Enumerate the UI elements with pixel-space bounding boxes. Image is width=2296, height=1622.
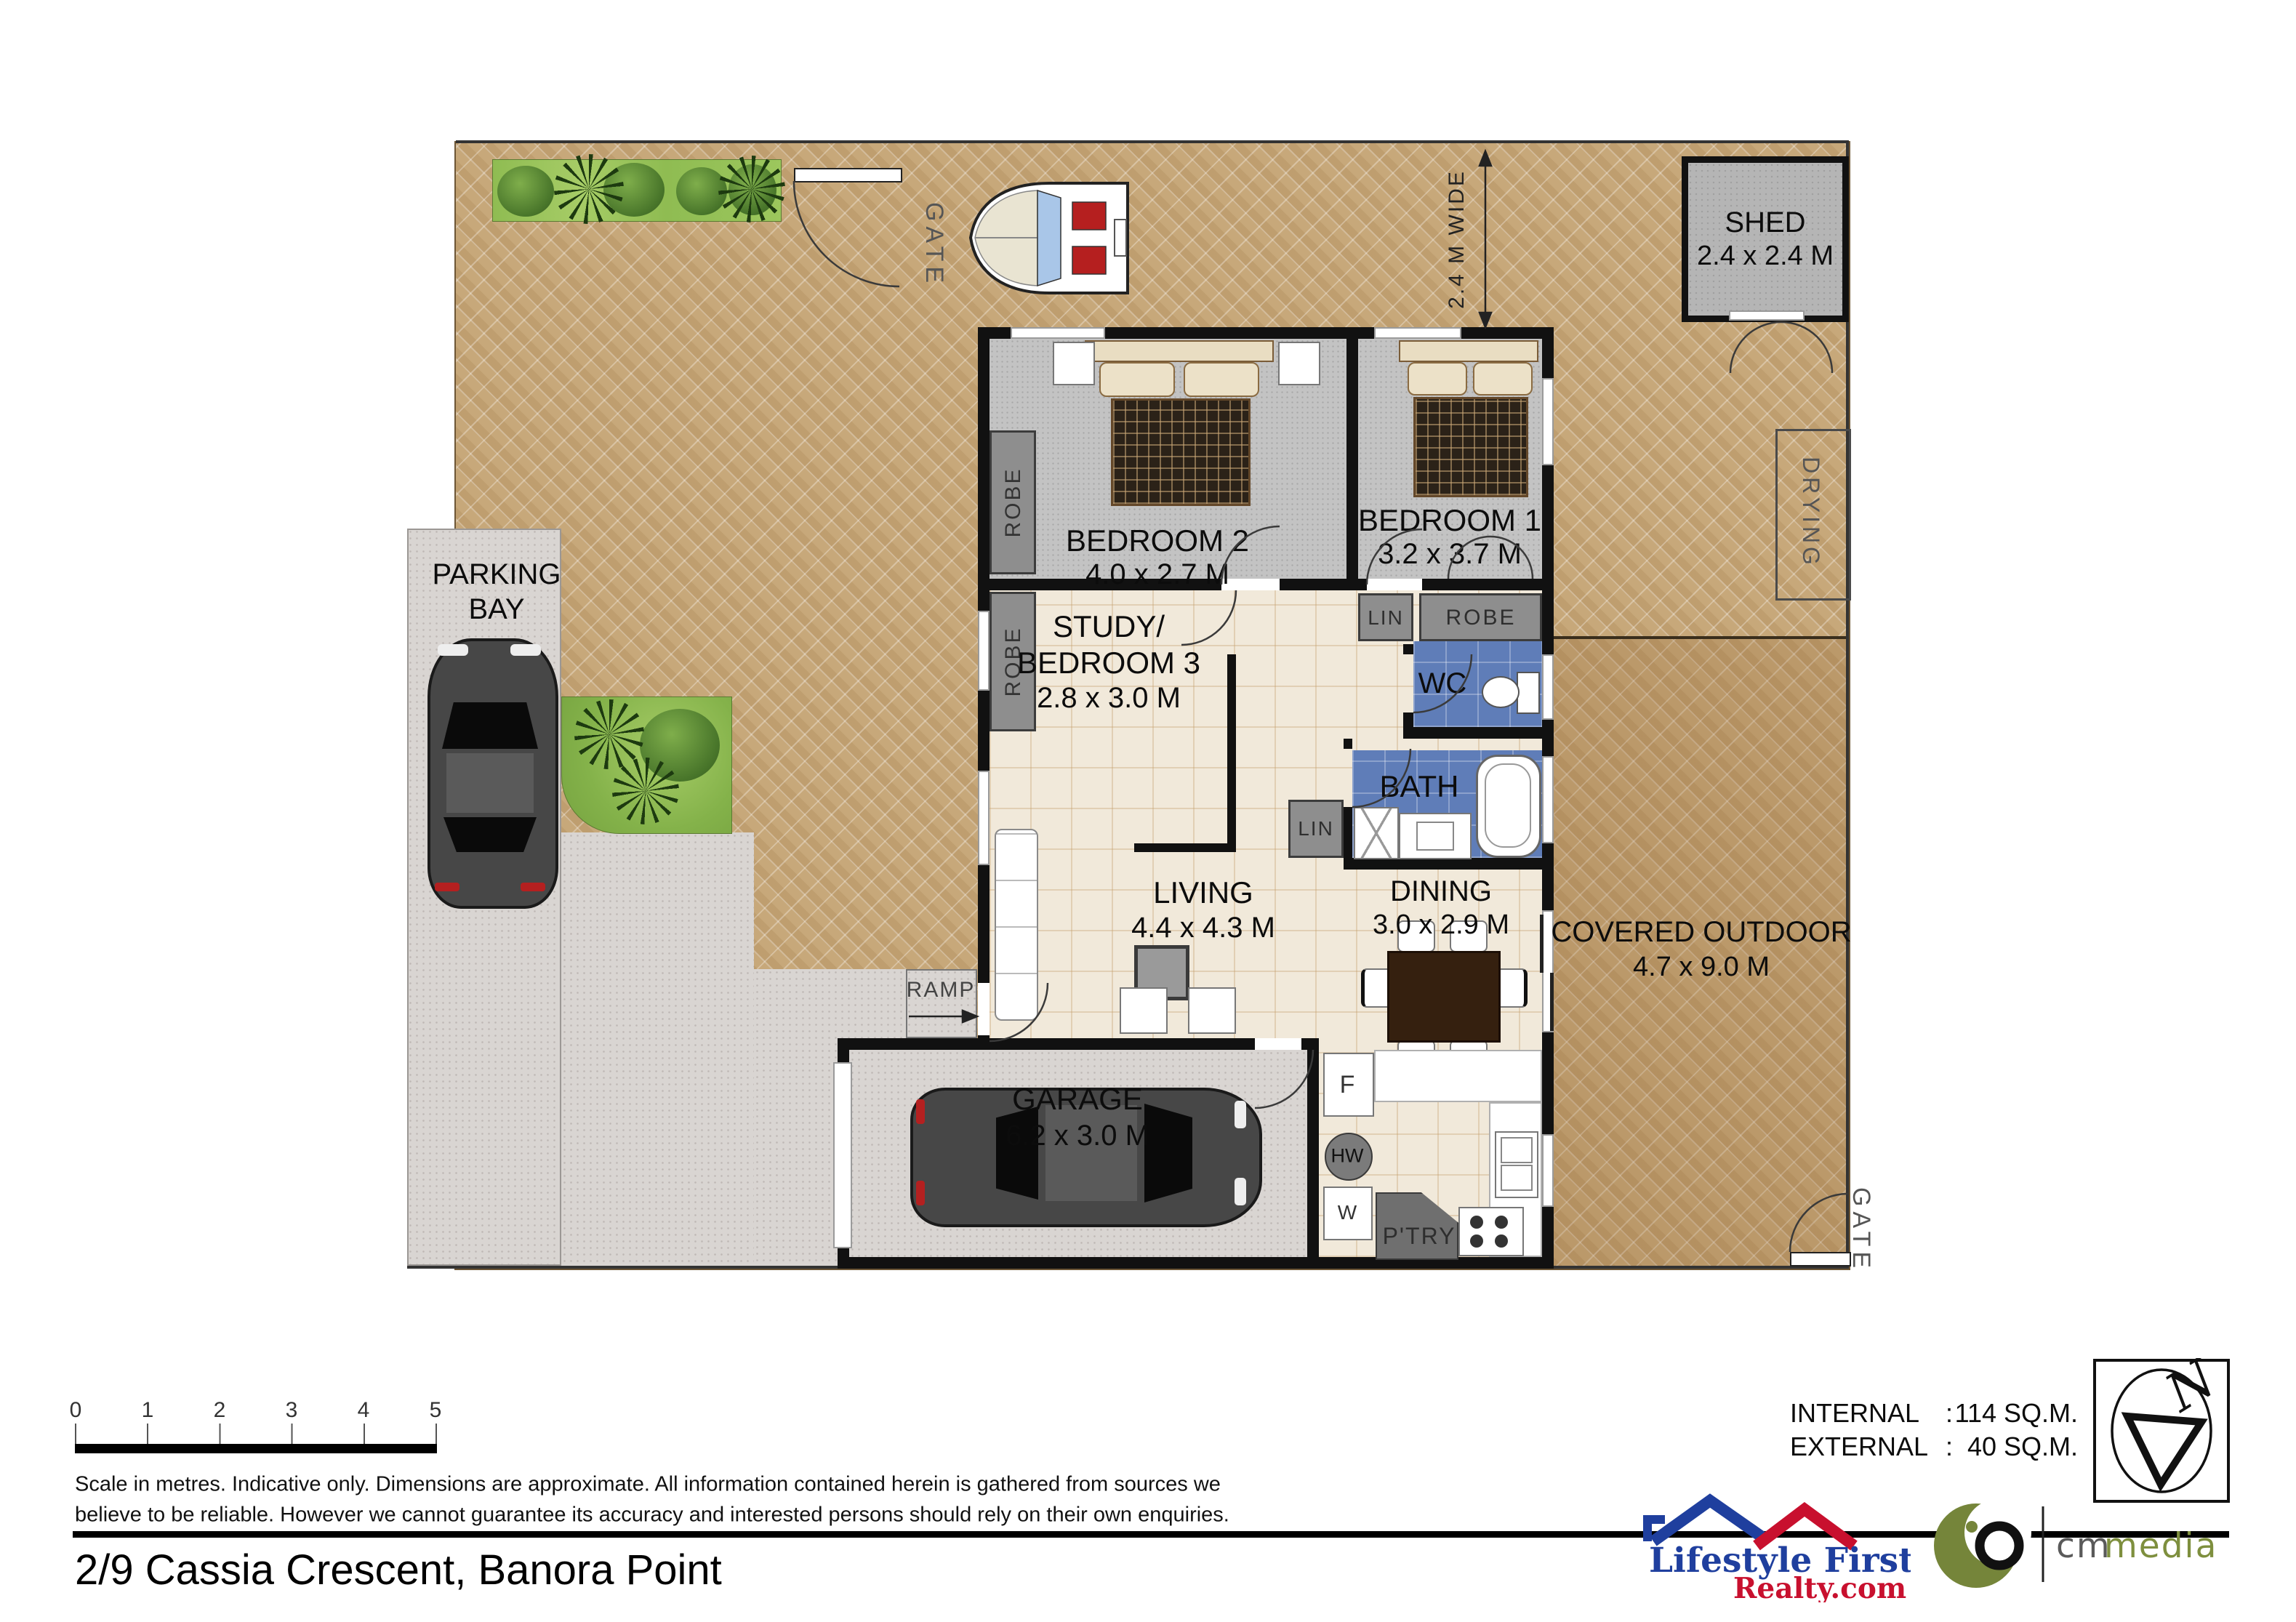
sink-bowl: [1501, 1137, 1533, 1163]
covered-outdoor-name: COVERED OUTDOOR: [1551, 918, 1851, 947]
garage-name: GARAGE: [1012, 1084, 1143, 1115]
window: [1542, 654, 1554, 720]
door-gap: [1367, 579, 1422, 590]
parking-bay-name-2: BAY: [468, 595, 524, 624]
gate-top-leaf: [794, 168, 902, 182]
external-value: 40 SQ.M.: [1967, 1434, 2078, 1460]
gate-top-label: GATE: [922, 202, 947, 288]
wall: [1134, 843, 1236, 852]
bedroom1-name: BEDROOM 1: [1358, 505, 1541, 536]
covered-outdoor-roofline: [1554, 636, 1849, 639]
bedside-table: [1053, 342, 1095, 385]
stove-burner: [1495, 1216, 1508, 1229]
lin-label: LIN: [1298, 819, 1334, 839]
window: [1011, 327, 1105, 339]
bed-pillow: [1408, 362, 1467, 396]
sofa: [995, 829, 1038, 1021]
palm-tree-icon: [554, 154, 624, 224]
parking-bay-name-1: PARKING: [432, 560, 561, 589]
fridge-label: F: [1340, 1072, 1355, 1097]
bed-mattress: [1413, 397, 1528, 497]
driveway-slab: [561, 832, 754, 1266]
window: [1542, 756, 1554, 843]
scale-note-1: Scale in metres. Indicative only. Dimens…: [75, 1474, 1221, 1495]
wall: [1346, 339, 1358, 579]
wc-name: WC: [1418, 669, 1467, 698]
external-colon: :: [1946, 1434, 1953, 1460]
scale-bar-ticks: [75, 1424, 437, 1444]
window: [1542, 1134, 1554, 1207]
realty-domain-text: Realty.com: [1733, 1572, 1906, 1602]
floor-plan-page: RAMP SHED 2.4 x 2.4 M DRYING GATE GATE 2…: [0, 0, 2296, 1622]
parked-car: [428, 638, 553, 903]
lin-label: LIN: [1368, 608, 1404, 628]
living-dims: 4.4 x 4.3 M: [1131, 913, 1275, 942]
door-gap: [978, 983, 990, 1035]
door-gap: [1255, 1038, 1301, 1050]
stove-burner: [1470, 1216, 1483, 1229]
external-label: EXTERNAL: [1790, 1434, 1928, 1460]
window: [1542, 378, 1554, 465]
shed-dims: 2.4 x 2.4 M: [1697, 242, 1834, 270]
toilet-bowl: [1482, 676, 1520, 708]
scale-bar: [75, 1444, 437, 1453]
dining-dims: 3.0 x 2.9 M: [1373, 911, 1509, 939]
sliding-door-panel: [1540, 915, 1544, 973]
stove-burner: [1470, 1234, 1483, 1248]
bed-mattress: [1111, 398, 1251, 506]
dining-name: DINING: [1390, 877, 1492, 906]
covered-outdoor-dims: 4.7 x 9.0 M: [1633, 953, 1770, 981]
shed-name: SHED: [1725, 208, 1805, 237]
window: [978, 611, 990, 691]
bed-pillow: [1473, 362, 1533, 396]
bath-name: BATH: [1380, 771, 1459, 802]
wall: [1344, 858, 1542, 870]
study-dims: 2.8 x 3.0 M: [1037, 683, 1181, 712]
internal-value: 114 SQ.M.: [1955, 1400, 2078, 1426]
dining-table: [1387, 951, 1501, 1043]
sink-bowl: [1501, 1165, 1533, 1191]
wall: [1403, 727, 1554, 739]
scale-tick-0: 0: [70, 1400, 82, 1421]
bed-headboard: [1399, 340, 1538, 362]
window: [978, 771, 990, 865]
bedside-table: [1278, 342, 1320, 385]
wall: [1403, 644, 1413, 654]
bed-headboard: [1085, 340, 1274, 362]
lifestyle-first-realty-logo: Lifestyle First Realty.com: [1640, 1487, 1911, 1602]
bedroom1-dims: 3.2 x 3.7 M: [1378, 539, 1522, 569]
palm-tree-icon: [612, 758, 679, 824]
wall: [1307, 1050, 1319, 1257]
boat: [963, 174, 1138, 302]
bathtub-inner: [1485, 763, 1531, 848]
bed-pillow: [1184, 362, 1259, 397]
drying-label: DRYING: [1799, 457, 1823, 569]
study-name-1: STUDY/: [1053, 611, 1165, 642]
scale-tick-4: 4: [358, 1400, 370, 1421]
scale-note-2: believe to be reliable. However we canno…: [75, 1505, 1229, 1526]
shed: [1682, 156, 1849, 322]
window: [1374, 327, 1461, 339]
shed-door-opening: [1729, 310, 1805, 321]
robe-label: ROBE: [1445, 607, 1516, 629]
scale-tick-1: 1: [142, 1400, 154, 1421]
fence-top: [456, 140, 1849, 143]
garage-roller-door: [833, 1062, 852, 1248]
passage-width-label: 2.4 M WIDE: [1446, 169, 1468, 309]
internal-colon: :: [1946, 1400, 1953, 1426]
palm-tree-icon: [574, 699, 644, 769]
vanity-basin: [1416, 822, 1454, 851]
gate-bottom-leaf: [1790, 1252, 1851, 1266]
gate-bottom-label: GATE: [1849, 1187, 1874, 1273]
bedroom2-name: BEDROOM 2: [1066, 526, 1249, 556]
stove: [1458, 1207, 1524, 1256]
study-name-2: BEDROOM 3: [1017, 648, 1200, 678]
bedroom2-dims: 4.0 x 2.7 M: [1085, 560, 1229, 589]
wall: [1344, 739, 1352, 749]
toilet-tank: [1517, 672, 1540, 714]
scale-tick-2: 2: [214, 1400, 226, 1421]
stove-burner: [1495, 1234, 1508, 1248]
robe-label: ROBE: [1003, 467, 1024, 537]
scale-tick-5: 5: [430, 1400, 442, 1421]
pantry-label: P'TRY: [1383, 1224, 1456, 1248]
wall: [1403, 712, 1413, 727]
sliding-door-panel: [1550, 973, 1554, 1031]
page-title: 2/9 Cassia Crescent, Banora Point: [75, 1549, 722, 1591]
bush-icon: [497, 166, 554, 217]
cm-text: cm: [2056, 1526, 2111, 1566]
wall: [1227, 654, 1236, 852]
washer-label: W: [1338, 1203, 1357, 1223]
armchair: [1120, 987, 1168, 1034]
palm-tree-icon: [718, 156, 785, 222]
internal-label: INTERNAL: [1790, 1400, 1919, 1426]
wall: [1344, 807, 1352, 858]
media-text: media: [2104, 1526, 2217, 1566]
bed-pillow: [1099, 362, 1175, 397]
hot-water-label: HW: [1331, 1147, 1364, 1166]
wall: [838, 1038, 1319, 1050]
shower: [1354, 807, 1399, 859]
north-compass-icon: N: [2092, 1358, 2231, 1503]
scale-tick-3: 3: [286, 1400, 298, 1421]
ramp-label: RAMP: [907, 979, 976, 1001]
kitchen-bench-top: [1374, 1050, 1542, 1102]
armchair: [1188, 987, 1236, 1034]
door-gap: [1221, 579, 1280, 590]
garage-dims: 6.2 x 3.0 M: [1005, 1121, 1149, 1150]
cmmedia-logo: cm media: [1928, 1487, 2228, 1602]
living-name: LIVING: [1153, 878, 1253, 908]
